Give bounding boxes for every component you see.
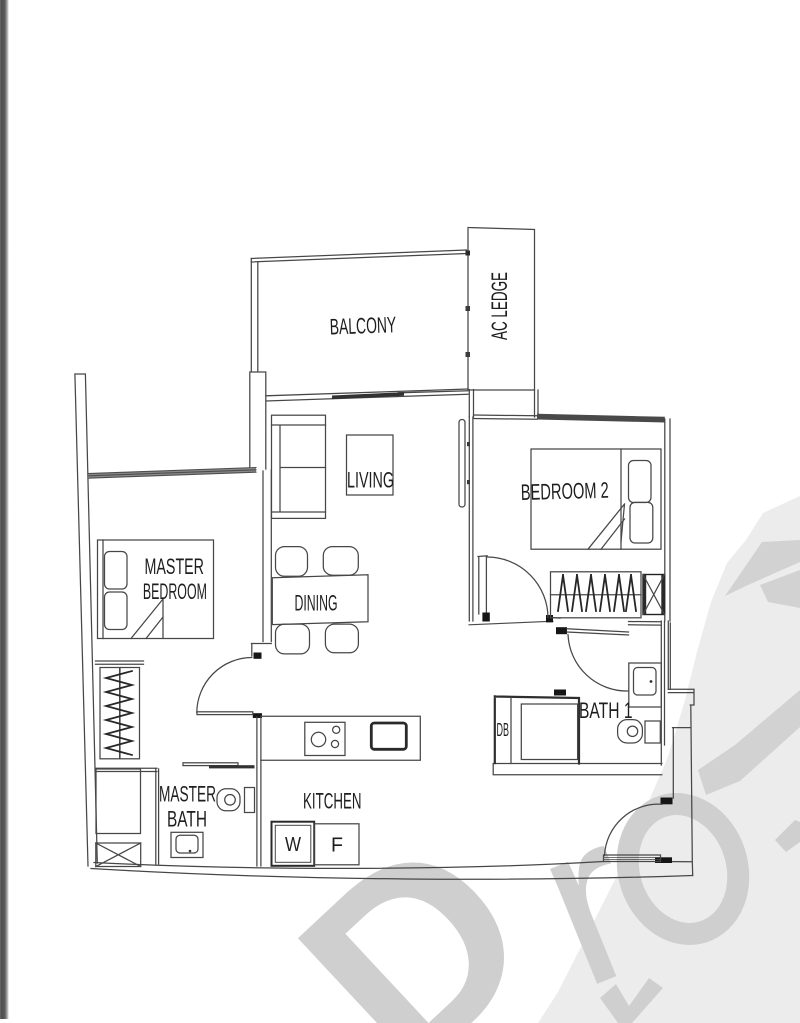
svg-text:BALCONY: BALCONY — [329, 312, 396, 339]
svg-text:F: F — [331, 835, 343, 857]
svg-text:DINING: DINING — [295, 591, 338, 616]
svg-text:BEDROOM 2: BEDROOM 2 — [520, 478, 609, 505]
svg-text:W: W — [285, 834, 301, 856]
svg-text:BATH: BATH — [167, 807, 207, 832]
svg-text:DB: DB — [497, 720, 510, 740]
svg-text:AC LEDGE: AC LEDGE — [487, 272, 512, 340]
svg-text:KITCHEN: KITCHEN — [303, 789, 362, 814]
svg-text:BATH 1: BATH 1 — [579, 698, 633, 723]
svg-text:MASTER: MASTER — [145, 554, 205, 579]
svg-text:MASTER: MASTER — [159, 782, 216, 807]
svg-text:BEDROOM: BEDROOM — [143, 579, 207, 604]
svg-text:LIVING: LIVING — [347, 468, 394, 493]
